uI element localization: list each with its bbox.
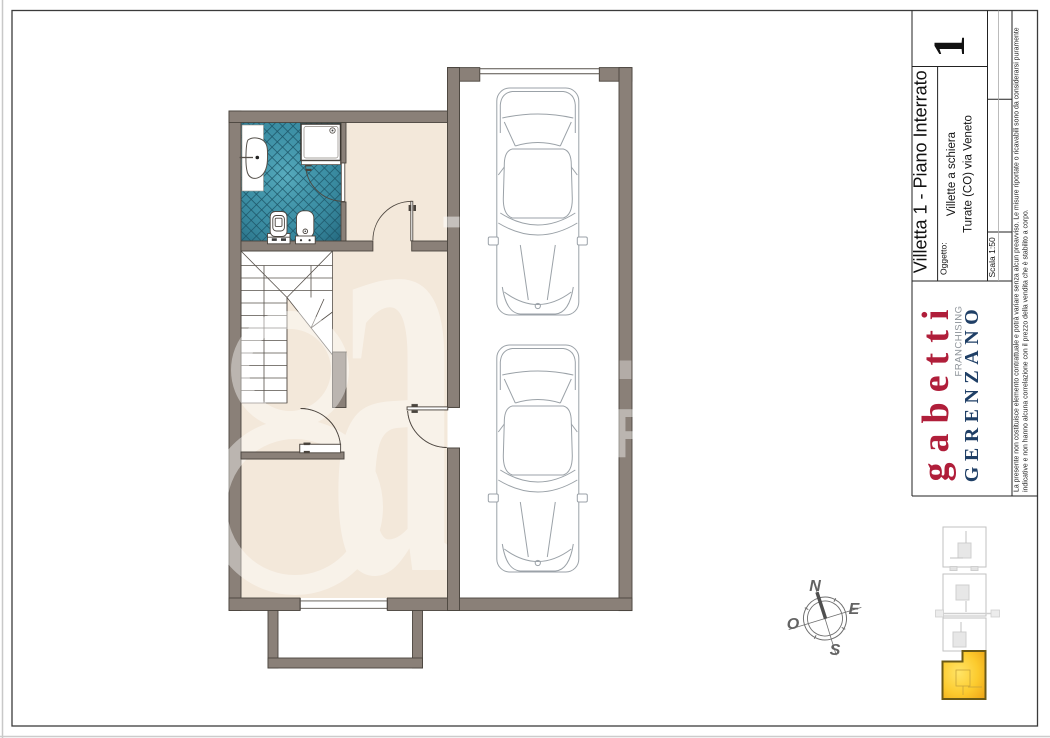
svg-text:GERENZANO: GERENZANO [961, 304, 983, 482]
svg-text:Villette a schiera: Villette a schiera [946, 131, 958, 216]
svg-text:N: N [809, 578, 821, 595]
svg-text:gabetti: gabetti [915, 300, 957, 482]
svg-text:indicative e non hanno alcuna: indicative e non hanno alcuna correlazio… [1023, 209, 1030, 492]
svg-text:Scala 1:50: Scala 1:50 [987, 237, 997, 277]
svg-text:Turate (CO) via Veneto: Turate (CO) via Veneto [963, 115, 975, 233]
svg-text:La presente non costituisce el: La presente non costituisce elemento con… [1014, 27, 1021, 492]
svg-text:S: S [830, 642, 841, 659]
svg-text:E: E [849, 601, 861, 618]
svg-text:Villetta 1 - Piano Interrato: Villetta 1 - Piano Interrato [911, 70, 931, 273]
svg-text:1: 1 [925, 36, 974, 58]
svg-text:R: R [607, 393, 670, 472]
svg-text:O: O [787, 616, 800, 633]
svg-text:Oggetto:: Oggetto: [939, 242, 949, 275]
